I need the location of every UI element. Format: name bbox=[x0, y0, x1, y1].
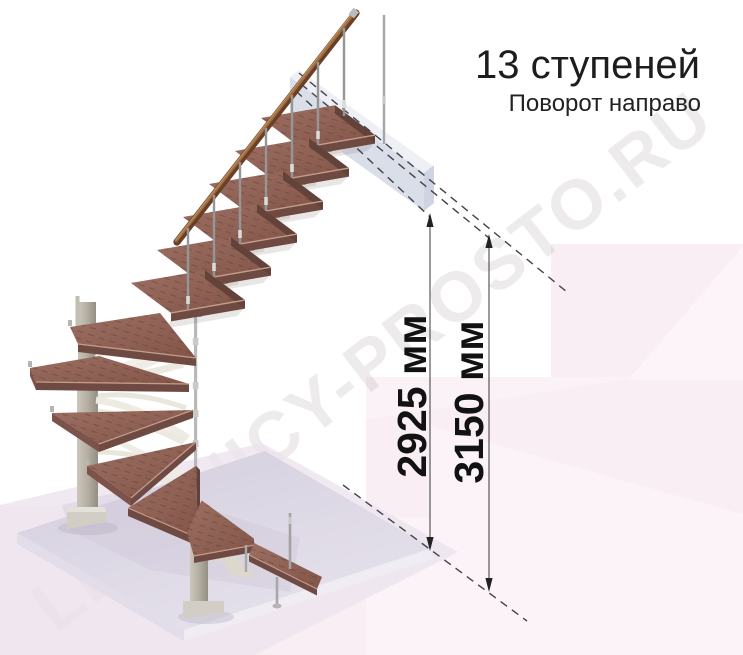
svg-text:Поворот направо: Поворот направо bbox=[509, 90, 701, 117]
svg-text:3150 мм: 3150 мм bbox=[446, 320, 492, 483]
svg-text:2925 мм: 2925 мм bbox=[389, 314, 435, 477]
svg-text:13 ступеней: 13 ступеней bbox=[475, 43, 700, 87]
